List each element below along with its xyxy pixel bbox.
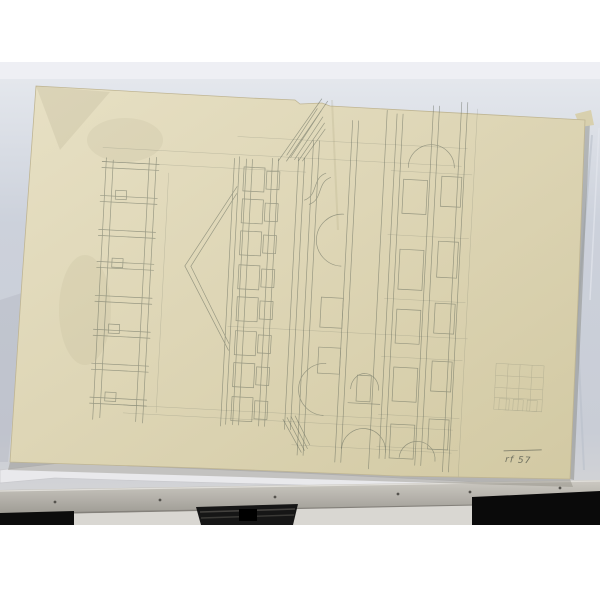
handwritten-note: rf 57 (505, 455, 532, 466)
shadow-block-left (0, 511, 74, 525)
screw-icon (469, 491, 472, 494)
shadow-block-right (472, 491, 600, 525)
screw-icon (559, 487, 562, 490)
screw-icon (274, 496, 277, 499)
equipment-stand (196, 504, 298, 525)
wall-highlight-band (0, 62, 600, 79)
drawing-photo: rf 57 (0, 0, 600, 600)
screw-icon (159, 499, 162, 502)
photo-scan-page: rf 57 (0, 0, 600, 600)
screw-icon (54, 501, 57, 504)
screw-icon (397, 493, 400, 496)
stand-center-block (239, 509, 257, 521)
paper-group: rf 57 (8, 84, 594, 487)
